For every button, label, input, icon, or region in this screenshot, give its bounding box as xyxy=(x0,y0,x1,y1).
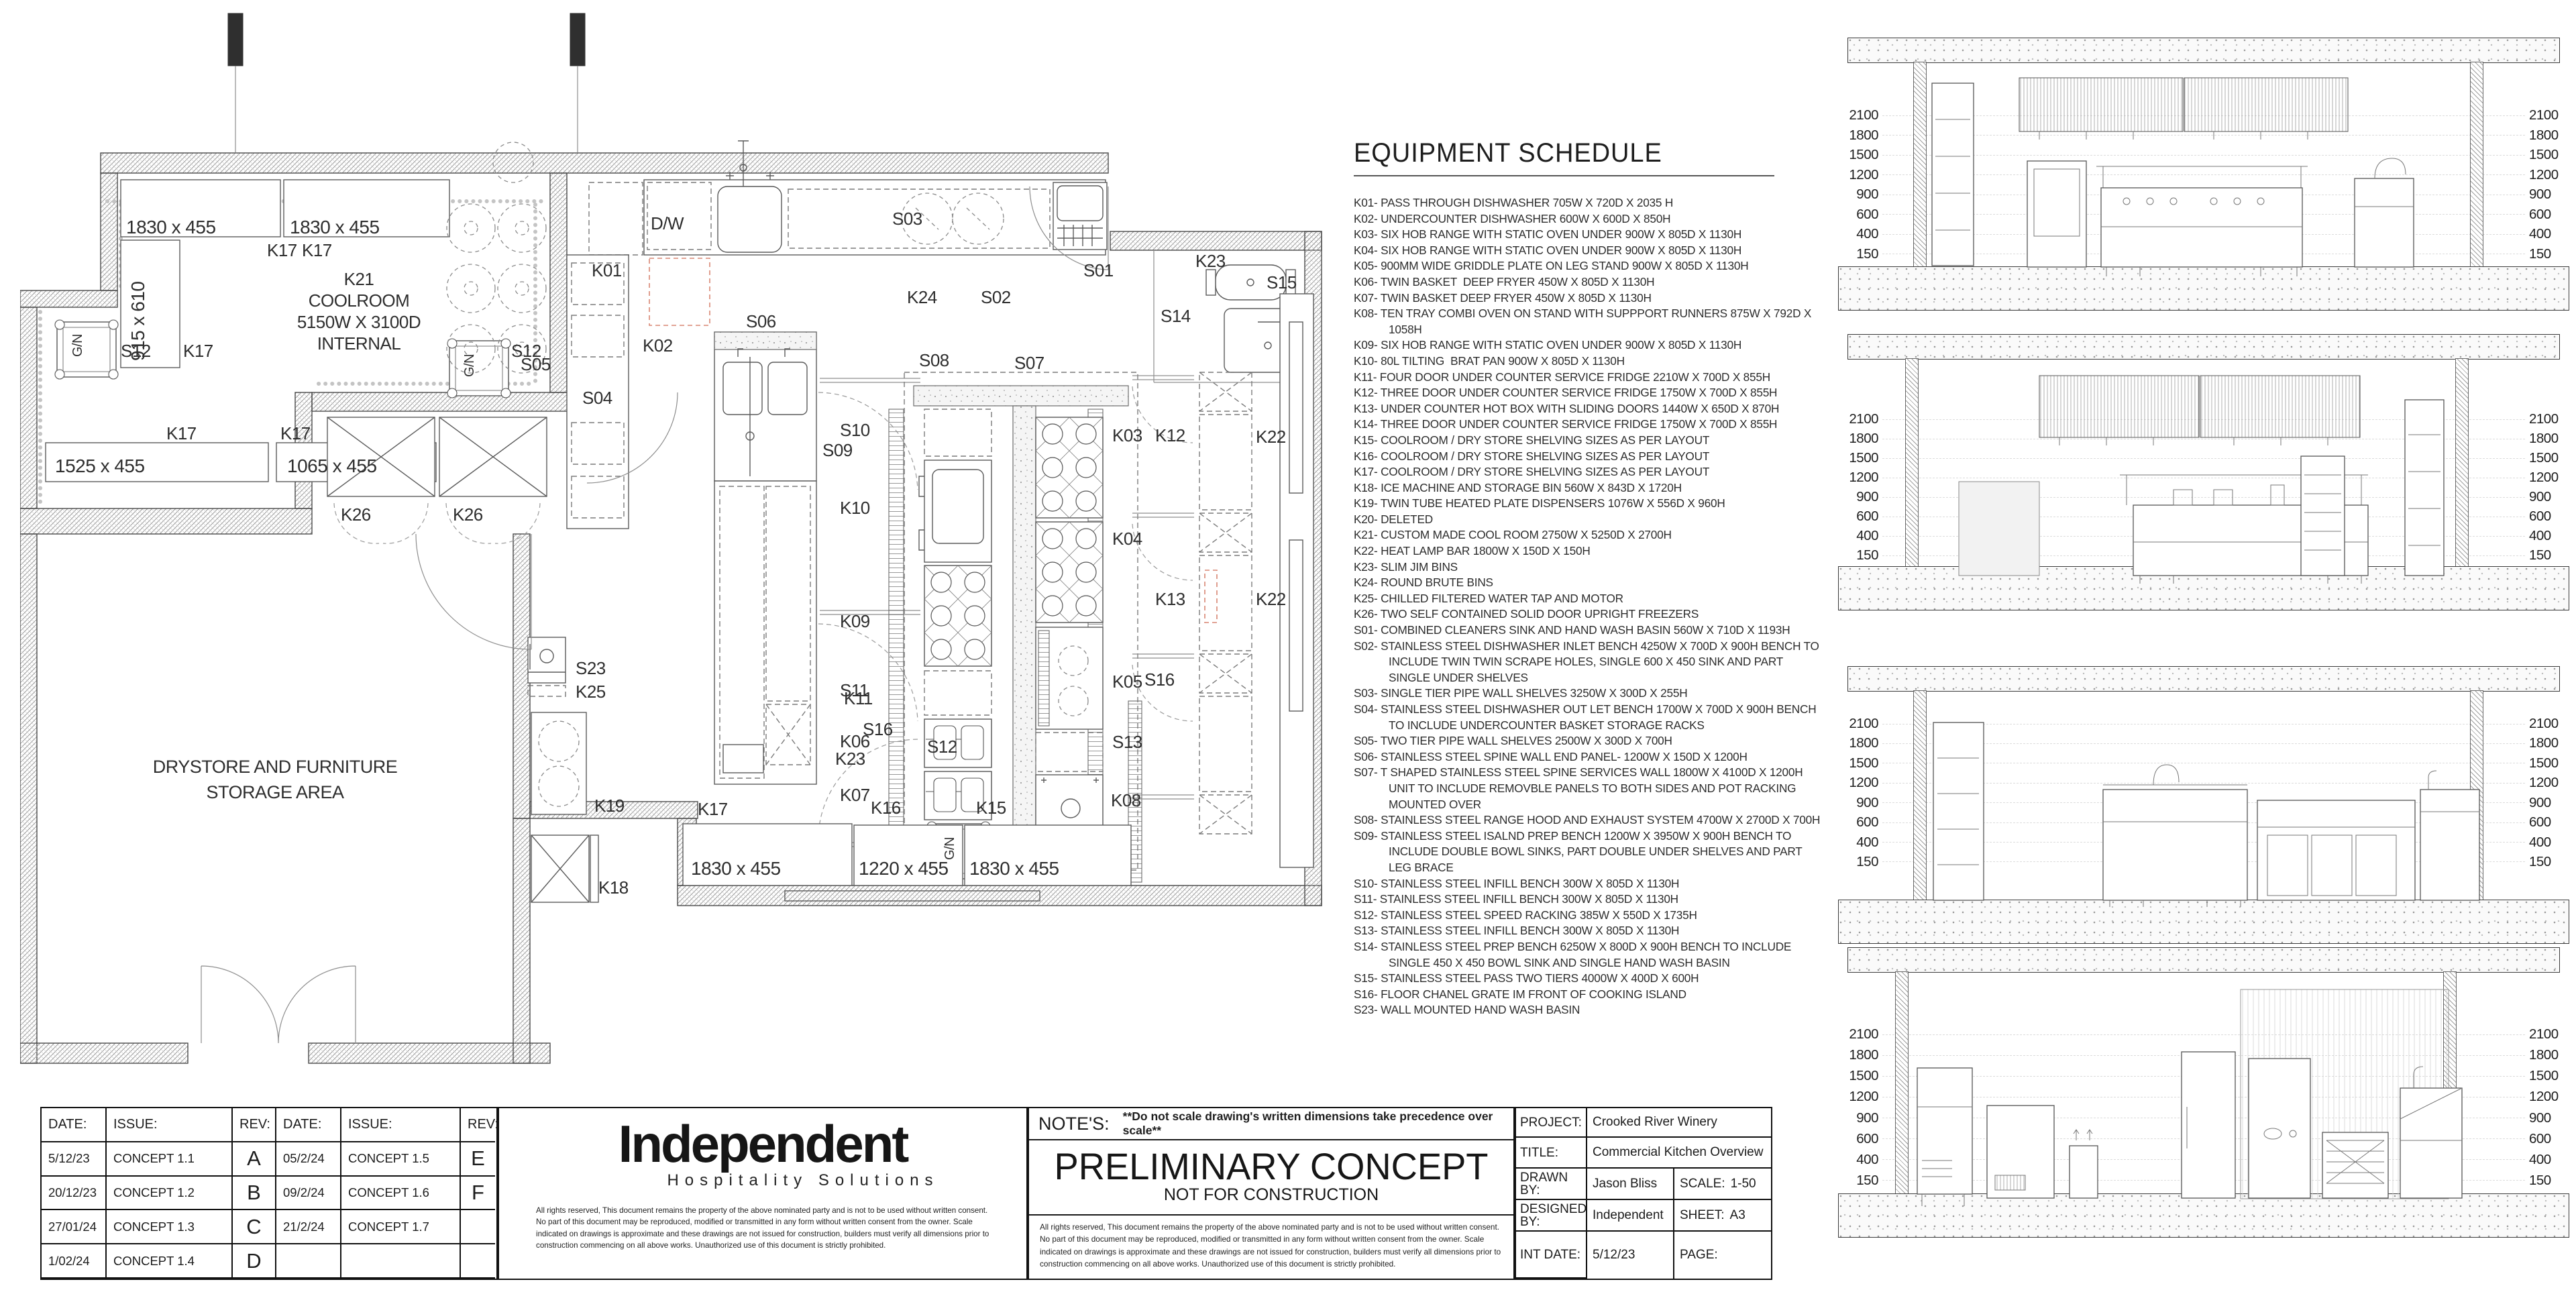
plan-label: S08 xyxy=(919,350,949,370)
plan-label: 1830 x 455 xyxy=(969,858,1059,879)
annex xyxy=(1132,250,1313,867)
plan-label: 1065 x 455 xyxy=(287,455,377,476)
drawn-by: Jason Bliss xyxy=(1587,1169,1673,1199)
revision-cell: B xyxy=(233,1177,276,1211)
revision-table: DATE:ISSUE:REV:DATE:ISSUE:REV:5/12/23CON… xyxy=(40,1107,498,1280)
plan-label: K15 xyxy=(976,798,1006,818)
equipment-item: K21- CUSTOM MADE COOL ROOM 2750W X 5250D… xyxy=(1354,527,1823,543)
plan-label: 5150W X 3100D xyxy=(297,312,421,332)
plan-label: G/N xyxy=(70,334,85,357)
copyright-disclaimer: All rights reserved, This document remai… xyxy=(1029,1216,1513,1275)
equipment-item: K08- TEN TRAY COMBI OVEN ON STAND WITH S… xyxy=(1354,306,1823,337)
plan-label: 1525 x 455 xyxy=(55,455,145,476)
equipment-item: K05- 900MM WIDE GRIDDLE PLATE ON LEG STA… xyxy=(1354,258,1823,274)
plan-label: S05 xyxy=(521,354,551,374)
equipment-item: S16- FLOOR CHANEL GRATE IM FRONT OF COOK… xyxy=(1354,987,1823,1003)
plan-label: K17 xyxy=(302,240,332,260)
plan-label: K17 xyxy=(267,240,297,260)
griddle-icon xyxy=(1036,627,1103,729)
plan-label: K26 xyxy=(453,504,483,525)
revision-cell: 5/12/23 xyxy=(42,1142,107,1177)
equipment-item: K03- SIX HOB RANGE WITH STATIC OVEN UNDE… xyxy=(1354,227,1823,243)
notes-text: **Do not scale drawing's written dimensi… xyxy=(1123,1110,1504,1138)
plan-label: DRYSTORE AND FURNITURE xyxy=(153,757,398,777)
plan-label: S10 xyxy=(840,420,870,440)
int-date: 5/12/23 xyxy=(1587,1232,1673,1279)
plan-label: S12 xyxy=(927,737,957,757)
revision-cell: C xyxy=(233,1210,276,1244)
equipment-schedule-title: EQUIPMENT SCHEDULE xyxy=(1354,138,1774,176)
elevation-3: 2100210018001800150015001200120090090060… xyxy=(1838,647,2569,977)
plan-label: S16 xyxy=(1144,669,1175,690)
equipment-item: S09- STAINLESS STEEL ISALND PREP BENCH 1… xyxy=(1354,828,1823,876)
plan-label: K21 xyxy=(344,269,374,289)
plan-label: S02 xyxy=(981,287,1011,307)
revision-cell: F xyxy=(461,1177,495,1211)
scale-label: SCALE: xyxy=(1680,1177,1725,1191)
revision-header: REV: xyxy=(461,1108,495,1142)
equipment-item: K25- CHILLED FILTERED WATER TAP AND MOTO… xyxy=(1354,591,1823,607)
plan-label: K12 xyxy=(1155,425,1185,445)
plan-label: S01 xyxy=(1083,260,1114,280)
plate-dispenser-icon xyxy=(531,712,586,814)
plan-label: INTERNAL xyxy=(317,333,401,354)
equipment-item: K06- TWIN BASKET DEEP FRYER 450W X 805D … xyxy=(1354,274,1823,290)
revision-header: ISSUE: xyxy=(341,1108,461,1142)
plan-label: K25 xyxy=(576,682,606,702)
plan-label: K22 xyxy=(1256,589,1286,609)
plan-label: COOLROOM xyxy=(309,290,410,311)
revision-cell: D xyxy=(233,1244,276,1279)
revision-cell: CONCEPT 1.2 xyxy=(107,1177,233,1211)
plan-label: K01 xyxy=(592,260,622,280)
equipment-item: S06- STAINLESS STEEL SPINE WALL END PANE… xyxy=(1354,749,1823,765)
equipment-item: S03- SINGLE TIER PIPE WALL SHELVES 3250W… xyxy=(1354,686,1823,702)
plan-label: K17 xyxy=(698,799,728,819)
plan-label: G/N xyxy=(462,354,477,377)
plan-label: 1830 x 455 xyxy=(290,217,380,237)
equipment-item: K13- UNDER COUNTER HOT BOX WITH SLIDING … xyxy=(1354,401,1823,417)
plan-labels: 1830 x 4551830 x 455K17K17915 x 610K17S1… xyxy=(55,209,1297,898)
plan-label: K24 xyxy=(907,287,937,307)
plan-label: S07 xyxy=(1014,353,1044,373)
designed-by-label: DESIGNED BY: xyxy=(1516,1200,1587,1232)
plan-label: K07 xyxy=(840,785,870,805)
revision-cell: 05/2/24 xyxy=(276,1142,341,1177)
equipment-item: K11- FOUR DOOR UNDER COUNTER SERVICE FRI… xyxy=(1354,370,1823,386)
plan-label: K16 xyxy=(871,798,901,818)
revision-cell: CONCEPT 1.5 xyxy=(341,1142,461,1177)
plan-label: D/W xyxy=(651,213,684,233)
plan-label: K22 xyxy=(1256,427,1286,447)
equipment-item: S02- STAINLESS STEEL DISHWASHER INLET BE… xyxy=(1354,639,1823,686)
revision-cell: 20/12/23 xyxy=(42,1177,107,1211)
plan-label: K06 xyxy=(840,731,870,751)
equipment-item: S05- TWO TIER PIPE WALL SHELVES 2500W X … xyxy=(1354,733,1823,749)
plan-label: STORAGE AREA xyxy=(206,782,344,802)
company-tagline: Hospitality Solutions xyxy=(667,1171,938,1190)
project-name: Crooked River Winery xyxy=(1587,1108,1771,1136)
equipment-item: K15- COOLROOM / DRY STORE SHELVING SIZES… xyxy=(1354,433,1823,449)
elevation-equipment xyxy=(1838,939,2569,1288)
equipment-item: K18- ICE MACHINE AND STORAGE BIN 560W X … xyxy=(1354,480,1823,496)
plan-label: K23 xyxy=(1195,251,1226,271)
plan-label: K17 xyxy=(166,423,197,443)
equipment-item: S23- WALL MOUNTED HAND WASH BASIN xyxy=(1354,1002,1823,1018)
drawing-title: Commercial Kitchen Overview xyxy=(1587,1138,1771,1167)
revision-cell: CONCEPT 1.7 xyxy=(341,1210,461,1244)
plan-label: S06 xyxy=(746,311,776,331)
elevation-equipment xyxy=(1838,19,2569,311)
sheet-value: A3 xyxy=(1730,1208,1746,1223)
title-label: TITLE: xyxy=(1516,1138,1587,1169)
round-bins-icon xyxy=(447,142,546,373)
plan-label: 1830 x 455 xyxy=(691,858,781,879)
notes-label: NOTE'S: xyxy=(1038,1114,1110,1134)
plan-label: K04 xyxy=(1112,529,1142,549)
equipment-item: K01- PASS THROUGH DISHWASHER 705W X 720D… xyxy=(1354,195,1823,211)
logo-block: Independent Hospitality Solutions All ri… xyxy=(498,1107,1028,1280)
plan-label: S09 xyxy=(822,440,853,460)
equipment-item: S12- STAINLESS STEEL SPEED RACKING 385W … xyxy=(1354,908,1823,924)
elevation-equipment xyxy=(1838,647,2569,977)
revision-cell: 21/2/24 xyxy=(276,1210,341,1244)
designed-by: Independent xyxy=(1587,1200,1673,1230)
equipment-item: K04- SIX HOB RANGE WITH STATIC OVEN UNDE… xyxy=(1354,243,1823,259)
plan-label: K02 xyxy=(643,335,673,356)
elevation-4: 2100210018001800150015001200120090090060… xyxy=(1838,939,2569,1288)
plan-label: K26 xyxy=(341,504,371,525)
equipment-item: S07- T SHAPED STAINLESS STEEL SPINE SERV… xyxy=(1354,765,1823,812)
plan-label: K05 xyxy=(1112,671,1142,692)
plan-label: K17 xyxy=(183,341,213,361)
revision-cell: CONCEPT 1.6 xyxy=(341,1177,461,1211)
project-info-table: PROJECT: Crooked River Winery TITLE: Com… xyxy=(1515,1107,1772,1280)
equipment-item: S14- STAINLESS STEEL PREP BENCH 6250W X … xyxy=(1354,939,1823,971)
plan-label: K03 xyxy=(1112,425,1142,445)
revision-cell: E xyxy=(461,1142,495,1177)
brat-pan-icon xyxy=(919,460,991,562)
revision-header: ISSUE: xyxy=(107,1108,233,1142)
equipment-item: S10- STAINLESS STEEL INFILL BENCH 300W X… xyxy=(1354,876,1823,892)
revision-cell: 1/02/24 xyxy=(42,1244,107,1279)
equipment-list: K01- PASS THROUGH DISHWASHER 705W X 720D… xyxy=(1354,195,1823,1018)
equipment-item: K09- SIX HOB RANGE WITH STATIC OVEN UNDE… xyxy=(1354,337,1823,354)
ice-machine-icon xyxy=(531,835,598,902)
plan-label: K08 xyxy=(1111,790,1141,810)
equipment-item: S04- STAINLESS STEEL DISHWASHER OUT LET … xyxy=(1354,702,1823,733)
plan-label: S14 xyxy=(1161,306,1191,326)
drawing-sheet: { "equipment_schedule": { "title": "EQUI… xyxy=(0,0,2576,1290)
drawn-by-label: DRAWN BY: xyxy=(1516,1169,1587,1200)
page-label: PAGE: xyxy=(1680,1248,1718,1262)
revision-header: DATE: xyxy=(42,1108,107,1142)
notes-block: NOTE'S: **Do not scale drawing's written… xyxy=(1028,1107,1515,1280)
plan-label: K10 xyxy=(840,498,870,518)
plan-label: S11 xyxy=(840,680,869,700)
equipment-item: K23- SLIM JIM BINS xyxy=(1354,559,1823,576)
revision-cell xyxy=(461,1244,495,1279)
equipment-item: K17- COOLROOM / DRY STORE SHELVING SIZES… xyxy=(1354,464,1823,480)
revision-cell: A xyxy=(233,1142,276,1177)
plan-label: K09 xyxy=(840,611,870,631)
plan-label: G/N xyxy=(943,837,957,860)
plan-label: S23 xyxy=(576,658,606,678)
plan-label: 1830 x 455 xyxy=(126,217,216,237)
scale-value: 1-50 xyxy=(1731,1177,1756,1191)
equipment-item: K16- COOLROOM / DRY STORE SHELVING SIZES… xyxy=(1354,449,1823,465)
equipment-item: K22- HEAT LAMP BAR 1800W X 150D X 150H xyxy=(1354,543,1823,559)
not-for-construction: NOT FOR CONSTRUCTION xyxy=(1029,1185,1513,1205)
equipment-item: K12- THREE DOOR UNDER COUNTER SERVICE FR… xyxy=(1354,385,1823,401)
plan-label: K17 xyxy=(280,423,311,443)
preliminary-stamp: PRELIMINARY CONCEPT xyxy=(1036,1144,1506,1188)
plan-label: K18 xyxy=(598,877,629,898)
elevation-2: 2100210018001800150015001200120090090060… xyxy=(1838,314,2569,647)
revision-cell: 09/2/24 xyxy=(276,1177,341,1211)
plan-label: K23 xyxy=(835,749,865,769)
equipment-item: S11- STAINLESS STEEL INFILL BENCH 300W X… xyxy=(1354,892,1823,908)
revision-cell: CONCEPT 1.4 xyxy=(107,1244,233,1279)
equipment-item: K14- THREE DOOR UNDER COUNTER SERVICE FR… xyxy=(1354,417,1823,433)
equipment-item: K19- TWIN TUBE HEATED PLATE DISPENSERS 1… xyxy=(1354,496,1823,512)
plan-label: S03 xyxy=(892,209,922,229)
revision-cell xyxy=(341,1244,461,1279)
hand-basin-icon xyxy=(528,637,566,696)
plan-label: K19 xyxy=(594,796,625,816)
elevation-equipment xyxy=(1838,314,2569,647)
project-label: PROJECT: xyxy=(1516,1108,1587,1138)
revision-cell xyxy=(461,1210,495,1244)
plan-label: S15 xyxy=(1267,272,1297,292)
copyright-disclaimer: All rights reserved, This document remai… xyxy=(536,1205,989,1252)
equipment-item: S15- STAINLESS STEEL PASS TWO TIERS 4000… xyxy=(1354,971,1823,987)
equipment-schedule: EQUIPMENT SCHEDULE K01- PASS THROUGH DIS… xyxy=(1354,138,1837,1018)
plan-label: S12 xyxy=(121,341,151,361)
equipment-item: S08- STAINLESS STEEL RANGE HOOD AND EXHA… xyxy=(1354,812,1823,828)
cleaners-sink-icon xyxy=(1053,182,1107,250)
equipment-item: K07- TWIN BASKET DEEP FRYER 450W X 805D … xyxy=(1354,290,1823,307)
revision-header: REV: xyxy=(233,1108,276,1142)
revision-cell: CONCEPT 1.1 xyxy=(107,1142,233,1177)
equipment-item: K26- TWO SELF CONTAINED SOLID DOOR UPRIG… xyxy=(1354,606,1823,623)
revision-header: DATE: xyxy=(276,1108,341,1142)
revision-cell: CONCEPT 1.3 xyxy=(107,1210,233,1244)
equipment-item: S13- STAINLESS STEEL INFILL BENCH 300W X… xyxy=(1354,923,1823,939)
plan-label: S13 xyxy=(1112,732,1142,752)
equipment-item: K24- ROUND BRUTE BINS xyxy=(1354,575,1823,591)
equipment-item: S01- COMBINED CLEANERS SINK AND HAND WAS… xyxy=(1354,623,1823,639)
sheet-label: SHEET: xyxy=(1680,1208,1725,1223)
revision-cell xyxy=(276,1244,341,1279)
equipment-item: K02- UNDERCOUNTER DISHWASHER 600W X 600D… xyxy=(1354,211,1823,227)
revision-cell: 27/01/24 xyxy=(42,1210,107,1244)
plan-label: K13 xyxy=(1155,589,1185,609)
plan-label: 1220 x 455 xyxy=(859,858,949,879)
company-logo: Independent xyxy=(619,1118,908,1170)
int-date-label: INT DATE: xyxy=(1516,1232,1587,1279)
floor-plan: 1830 x 4551830 x 455K17K17915 x 610K17S1… xyxy=(20,7,1355,1090)
elevation-1: 2100210018001800150015001200120090090060… xyxy=(1838,19,2569,311)
equipment-item: K20- DELETED xyxy=(1354,512,1823,528)
plan-label: S04 xyxy=(582,388,612,408)
equipment-item: K10- 80L TILTING BRAT PAN 900W X 805D X … xyxy=(1354,354,1823,370)
